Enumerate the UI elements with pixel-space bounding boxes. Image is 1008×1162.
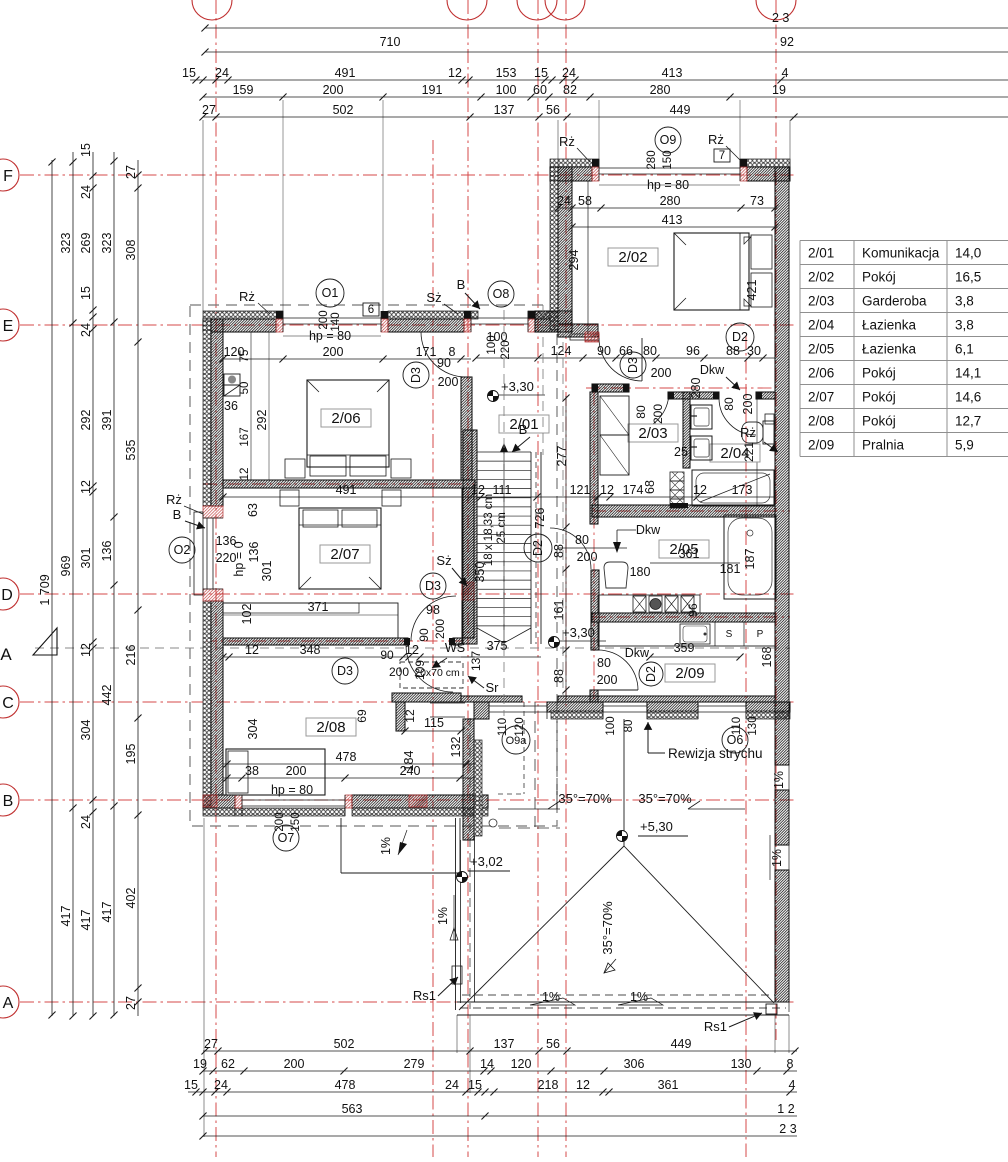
svg-text:88: 88 <box>552 669 566 683</box>
svg-text:502: 502 <box>334 1037 355 1051</box>
svg-text:90: 90 <box>437 356 451 370</box>
svg-text:+3,30: +3,30 <box>501 379 534 394</box>
svg-text:15: 15 <box>182 66 196 80</box>
svg-text:109: 109 <box>413 660 427 680</box>
svg-text:137: 137 <box>469 651 483 671</box>
svg-text:69: 69 <box>355 709 369 723</box>
svg-text:168: 168 <box>760 647 774 668</box>
svg-text:hp = 80: hp = 80 <box>309 329 351 343</box>
svg-text:502: 502 <box>333 103 354 117</box>
svg-text:323: 323 <box>100 233 114 254</box>
svg-text:417: 417 <box>79 910 93 931</box>
svg-text:710: 710 <box>380 35 401 49</box>
svg-text:200: 200 <box>651 404 665 424</box>
svg-text:16,5: 16,5 <box>955 270 981 285</box>
svg-text:24: 24 <box>445 1078 459 1092</box>
svg-text:102: 102 <box>240 604 254 625</box>
svg-text:120: 120 <box>511 1057 532 1071</box>
svg-text:D2: D2 <box>531 540 545 556</box>
svg-text:2/01: 2/01 <box>808 246 834 261</box>
svg-text:442: 442 <box>100 685 114 706</box>
svg-text:2/05: 2/05 <box>808 342 834 357</box>
svg-text:80: 80 <box>623 720 635 733</box>
svg-text:413: 413 <box>662 66 683 80</box>
svg-text:D3: D3 <box>409 367 423 383</box>
svg-text:80: 80 <box>575 533 589 547</box>
svg-text:24: 24 <box>215 66 229 80</box>
svg-text:449: 449 <box>670 103 691 117</box>
svg-text:969: 969 <box>59 556 73 577</box>
svg-text:92: 92 <box>780 35 794 49</box>
svg-text:12: 12 <box>693 483 707 497</box>
svg-text:30: 30 <box>747 344 761 358</box>
svg-text:12: 12 <box>576 1078 590 1092</box>
svg-text:24: 24 <box>79 815 93 829</box>
svg-text:491: 491 <box>335 66 356 80</box>
svg-text:A: A <box>0 645 12 664</box>
svg-text:110: 110 <box>497 718 509 736</box>
svg-text:323: 323 <box>59 233 73 254</box>
svg-text:2/07: 2/07 <box>808 390 834 405</box>
svg-text:B: B <box>173 507 182 522</box>
svg-text:478: 478 <box>336 750 357 764</box>
svg-text:Łazienka: Łazienka <box>862 342 917 357</box>
svg-text:90: 90 <box>417 628 431 642</box>
svg-text:2/04: 2/04 <box>808 318 835 333</box>
svg-text:82: 82 <box>563 83 577 97</box>
svg-text:200: 200 <box>433 619 447 639</box>
svg-text:O7: O7 <box>278 831 295 845</box>
svg-text:191: 191 <box>422 83 443 97</box>
svg-text:301: 301 <box>79 548 93 569</box>
svg-text:371: 371 <box>308 600 329 614</box>
svg-text:417: 417 <box>100 902 114 923</box>
svg-text:221: 221 <box>742 442 756 462</box>
svg-text:hp = 0: hp = 0 <box>232 541 246 576</box>
svg-text:A: A <box>3 995 14 1012</box>
svg-text:280: 280 <box>689 378 703 399</box>
svg-text:80: 80 <box>634 405 648 419</box>
svg-text:5,9: 5,9 <box>955 438 974 453</box>
svg-text:200: 200 <box>651 366 672 380</box>
svg-text:2/02: 2/02 <box>808 270 834 285</box>
svg-text:Rewizja strychu: Rewizja strychu <box>668 746 763 761</box>
svg-text:413: 413 <box>662 213 683 227</box>
svg-text:171: 171 <box>416 345 437 359</box>
svg-text:D3: D3 <box>425 579 441 593</box>
svg-text:12: 12 <box>403 709 417 723</box>
svg-text:304: 304 <box>79 720 93 741</box>
svg-text:174: 174 <box>623 483 644 497</box>
svg-text:hp = 80: hp = 80 <box>647 178 689 192</box>
svg-text:14,1: 14,1 <box>955 366 981 381</box>
svg-text:2 3: 2 3 <box>772 11 789 25</box>
svg-text:27: 27 <box>202 103 216 117</box>
svg-text:Pokój: Pokój <box>862 366 896 381</box>
svg-text:C: C <box>2 695 14 712</box>
svg-text:280: 280 <box>650 83 671 97</box>
svg-text:348: 348 <box>300 643 321 657</box>
svg-text:535: 535 <box>124 440 138 461</box>
svg-text:+5,30: +5,30 <box>640 819 673 834</box>
svg-text:421: 421 <box>745 280 759 301</box>
svg-text:15: 15 <box>534 66 548 80</box>
svg-text:132: 132 <box>449 737 463 758</box>
svg-text:200: 200 <box>438 375 459 389</box>
svg-text:187: 187 <box>743 549 757 570</box>
svg-text:308: 308 <box>124 240 138 261</box>
svg-text:14,6: 14,6 <box>955 390 981 405</box>
svg-text:130: 130 <box>747 716 759 735</box>
svg-text:12: 12 <box>79 643 93 657</box>
svg-text:hp = 80: hp = 80 <box>271 783 313 797</box>
svg-text:Rż: Rż <box>740 425 756 440</box>
svg-text:Rż: Rż <box>239 289 255 304</box>
svg-text:301: 301 <box>260 561 274 582</box>
svg-text:478: 478 <box>335 1078 356 1092</box>
svg-text:6,1: 6,1 <box>955 342 974 357</box>
svg-text:1%: 1% <box>436 907 450 925</box>
svg-text:12: 12 <box>245 643 259 657</box>
svg-text:24: 24 <box>79 185 93 199</box>
svg-text:417: 417 <box>59 906 73 927</box>
svg-text:292: 292 <box>79 410 93 431</box>
svg-text:100: 100 <box>496 83 517 97</box>
svg-text:269: 269 <box>79 233 93 254</box>
svg-text:1 709: 1 709 <box>38 574 52 605</box>
svg-text:D3: D3 <box>337 664 353 678</box>
svg-text:75: 75 <box>239 350 251 363</box>
svg-text:96: 96 <box>686 603 700 617</box>
svg-text:136: 136 <box>247 542 261 563</box>
svg-text:2/02: 2/02 <box>618 249 647 266</box>
svg-text:3,8: 3,8 <box>955 318 974 333</box>
svg-text:137: 137 <box>494 1037 515 1051</box>
svg-text:24: 24 <box>562 66 576 80</box>
svg-text:90: 90 <box>597 344 611 358</box>
svg-text:35°=70%: 35°=70% <box>600 901 615 955</box>
svg-text:277: 277 <box>555 446 569 467</box>
svg-text:280: 280 <box>646 150 658 169</box>
svg-text:200: 200 <box>318 310 330 329</box>
svg-text:Dkw: Dkw <box>636 523 661 537</box>
svg-text:O8: O8 <box>493 287 510 301</box>
svg-text:6: 6 <box>368 304 374 316</box>
svg-text:Rs1: Rs1 <box>413 988 436 1003</box>
svg-text:D3: D3 <box>626 357 640 373</box>
svg-text:8: 8 <box>787 1057 794 1071</box>
svg-text:12: 12 <box>471 483 485 497</box>
svg-text:F: F <box>3 168 13 185</box>
svg-text:D: D <box>1 587 13 604</box>
svg-text:15: 15 <box>79 286 93 300</box>
svg-text:726: 726 <box>533 508 547 529</box>
svg-text:361: 361 <box>679 547 700 561</box>
svg-text:4: 4 <box>782 66 789 80</box>
svg-text:167: 167 <box>239 427 251 446</box>
svg-text:27: 27 <box>204 1037 218 1051</box>
svg-text:294: 294 <box>567 250 581 271</box>
svg-text:D2: D2 <box>732 330 748 344</box>
svg-text:27: 27 <box>124 996 138 1010</box>
svg-text:15: 15 <box>184 1078 198 1092</box>
svg-text:Rż: Rż <box>559 134 575 149</box>
svg-text:66: 66 <box>619 344 633 358</box>
svg-text:200: 200 <box>323 83 344 97</box>
svg-text:Dkw: Dkw <box>700 363 725 377</box>
svg-text:D2: D2 <box>644 666 658 682</box>
svg-text:159: 159 <box>233 83 254 97</box>
svg-text:O6: O6 <box>727 733 744 747</box>
svg-text:153: 153 <box>496 66 517 80</box>
svg-text:216: 216 <box>124 645 138 666</box>
svg-text:1 2: 1 2 <box>777 1102 794 1116</box>
svg-text:304: 304 <box>246 719 260 740</box>
svg-text:136: 136 <box>100 541 114 562</box>
svg-text:12: 12 <box>405 643 419 657</box>
svg-text:2/09: 2/09 <box>675 665 704 682</box>
svg-text:80: 80 <box>643 344 657 358</box>
svg-text:Pokój: Pokój <box>862 270 896 285</box>
svg-text:449: 449 <box>671 1037 692 1051</box>
svg-text:56: 56 <box>546 1037 560 1051</box>
svg-text:58: 58 <box>578 194 592 208</box>
svg-text:Rż: Rż <box>708 132 724 147</box>
svg-text:36: 36 <box>224 399 238 413</box>
svg-text:181: 181 <box>720 562 741 576</box>
svg-text:O1: O1 <box>322 286 339 300</box>
svg-text:Rż: Rż <box>166 492 182 507</box>
svg-text:491: 491 <box>336 483 357 497</box>
svg-text:200: 200 <box>284 1057 305 1071</box>
svg-text:Sr: Sr <box>486 680 500 695</box>
svg-text:19: 19 <box>193 1057 207 1071</box>
svg-text:2/08: 2/08 <box>808 414 834 429</box>
svg-text:14,0: 14,0 <box>955 246 981 261</box>
svg-text:19: 19 <box>772 83 786 97</box>
svg-text:25 cm: 25 cm <box>496 512 508 543</box>
svg-text:B: B <box>519 422 528 437</box>
svg-text:14: 14 <box>480 1057 494 1071</box>
svg-text:O9: O9 <box>660 133 677 147</box>
svg-text:2/03: 2/03 <box>638 425 667 442</box>
svg-text:2/07: 2/07 <box>330 546 359 563</box>
svg-text:Sż: Sż <box>436 553 451 568</box>
svg-text:359: 359 <box>674 641 695 655</box>
svg-text:Komunikacja: Komunikacja <box>862 246 940 261</box>
svg-text:25: 25 <box>674 445 688 459</box>
svg-text:24: 24 <box>557 194 571 208</box>
svg-text:111: 111 <box>492 483 511 497</box>
svg-text:200: 200 <box>286 764 307 778</box>
svg-text:12: 12 <box>448 66 462 80</box>
svg-text:15: 15 <box>79 143 93 157</box>
svg-text:3,8: 3,8 <box>955 294 974 309</box>
svg-text:12: 12 <box>600 483 614 497</box>
svg-text:35°=70%: 35°=70% <box>638 791 692 806</box>
svg-text:200: 200 <box>323 345 344 359</box>
svg-text:90: 90 <box>380 648 394 662</box>
svg-text:E: E <box>3 318 14 335</box>
svg-text:68: 68 <box>643 480 657 494</box>
svg-text:130: 130 <box>731 1057 752 1071</box>
svg-text:1%: 1% <box>379 837 393 855</box>
svg-text:292: 292 <box>255 410 269 431</box>
svg-text:4: 4 <box>789 1078 796 1092</box>
svg-text:306: 306 <box>624 1057 645 1071</box>
svg-text:7: 7 <box>719 150 725 162</box>
svg-text:63: 63 <box>246 503 260 517</box>
svg-text:38: 38 <box>245 764 259 778</box>
svg-text:115: 115 <box>424 716 444 730</box>
svg-text:Pokój: Pokój <box>862 414 896 429</box>
svg-text:27: 27 <box>124 165 138 179</box>
svg-text:80: 80 <box>597 656 611 670</box>
svg-text:2/09: 2/09 <box>808 438 834 453</box>
svg-text:391: 391 <box>100 410 114 431</box>
svg-text:2/08: 2/08 <box>316 719 345 736</box>
svg-text:200: 200 <box>597 673 618 687</box>
svg-text:Łazienka: Łazienka <box>862 318 917 333</box>
svg-text:B: B <box>457 277 466 292</box>
svg-text:100: 100 <box>605 716 617 735</box>
svg-text:P: P <box>757 629 764 640</box>
svg-text:2/06: 2/06 <box>808 366 834 381</box>
svg-text:96: 96 <box>686 344 700 358</box>
svg-text:137: 137 <box>494 103 515 117</box>
svg-text:180: 180 <box>630 565 651 579</box>
svg-text:200: 200 <box>389 665 409 679</box>
svg-text:50: 50 <box>239 382 251 395</box>
svg-text:563: 563 <box>342 1102 363 1116</box>
svg-text:24: 24 <box>214 1078 228 1092</box>
svg-text:60: 60 <box>533 83 547 97</box>
svg-text:+3,30: +3,30 <box>562 625 595 640</box>
svg-text:12: 12 <box>79 480 93 494</box>
svg-text:2/03: 2/03 <box>808 294 834 309</box>
svg-text:Dkw: Dkw <box>625 646 650 660</box>
svg-text:1%: 1% <box>770 849 784 867</box>
svg-text:402: 402 <box>124 888 138 909</box>
svg-text:Garderoba: Garderoba <box>862 294 927 309</box>
svg-text:S: S <box>726 629 733 640</box>
svg-text:Sż: Sż <box>426 290 441 305</box>
svg-text:12: 12 <box>239 468 251 481</box>
svg-text:161: 161 <box>552 600 566 621</box>
svg-text:361: 361 <box>658 1078 679 1092</box>
svg-text:35°=70%: 35°=70% <box>558 791 612 806</box>
svg-text:73: 73 <box>750 194 764 208</box>
svg-text:2/06: 2/06 <box>331 410 360 427</box>
svg-text:200: 200 <box>274 812 286 831</box>
svg-text:280: 280 <box>660 194 681 208</box>
svg-text:B: B <box>3 793 14 810</box>
svg-text:O2: O2 <box>174 543 191 557</box>
svg-text:62: 62 <box>221 1057 235 1071</box>
svg-text:+3,02: +3,02 <box>470 854 503 869</box>
svg-text:Pralnia: Pralnia <box>862 438 905 453</box>
svg-text:195: 195 <box>124 744 138 765</box>
svg-text:18 x 18,33 cm: 18 x 18,33 cm <box>483 494 495 566</box>
svg-text:200: 200 <box>577 550 598 564</box>
svg-text:80: 80 <box>722 397 736 411</box>
svg-text:2 3: 2 3 <box>779 1122 796 1136</box>
svg-text:1%: 1% <box>772 771 786 789</box>
svg-text:121: 121 <box>570 483 591 497</box>
svg-text:124: 124 <box>551 344 572 358</box>
svg-text:98: 98 <box>426 603 440 617</box>
svg-text:56: 56 <box>546 103 560 117</box>
svg-text:Rs1: Rs1 <box>704 1019 727 1034</box>
svg-text:88: 88 <box>552 544 566 558</box>
svg-text:150: 150 <box>290 812 302 831</box>
svg-text:218: 218 <box>538 1078 559 1092</box>
svg-text:279: 279 <box>404 1057 425 1071</box>
svg-text:12,7: 12,7 <box>955 414 981 429</box>
svg-text:200: 200 <box>741 394 755 415</box>
svg-text:24: 24 <box>79 323 93 337</box>
svg-text:350: 350 <box>473 562 487 583</box>
svg-text:173: 173 <box>732 483 753 497</box>
svg-text:Pokój: Pokój <box>862 390 896 405</box>
svg-text:240: 240 <box>400 764 421 778</box>
